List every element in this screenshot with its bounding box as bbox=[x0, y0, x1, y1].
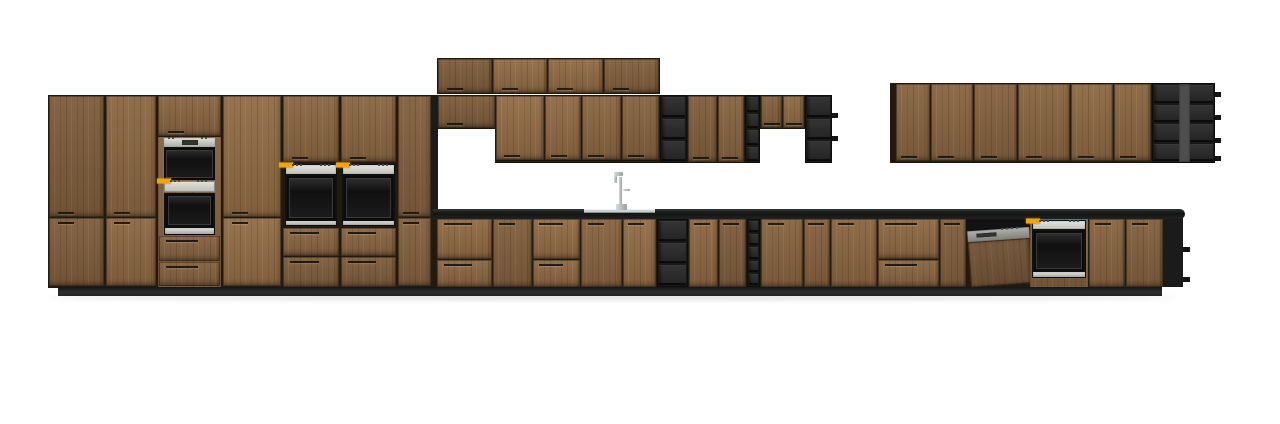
rightwall-door-2[interactable] bbox=[931, 84, 973, 161]
tall-door-1[interactable] bbox=[49, 96, 104, 217]
microwave-glass-door bbox=[164, 148, 215, 180]
open-shelf-wall-narrow[interactable] bbox=[745, 95, 760, 163]
oven-display-icon bbox=[336, 163, 350, 168]
faucet[interactable] bbox=[610, 171, 632, 211]
wall-oven-right[interactable] bbox=[342, 164, 395, 226]
plinth bbox=[58, 287, 1162, 296]
rightwall-door-3[interactable] bbox=[974, 84, 1017, 161]
oven-button bbox=[386, 164, 388, 166]
base-door-3[interactable] bbox=[623, 219, 656, 287]
shelf-cell bbox=[747, 147, 758, 162]
oven-button bbox=[1077, 220, 1079, 222]
midwall-door-3[interactable] bbox=[582, 96, 621, 160]
oven-button bbox=[1073, 220, 1075, 222]
oven-button bbox=[1047, 220, 1049, 222]
shelf-tab-mid-1 bbox=[832, 113, 838, 118]
dishwasher-button bbox=[1001, 228, 1003, 230]
oven-button bbox=[296, 164, 298, 166]
tall-lower-door-3[interactable] bbox=[223, 218, 281, 286]
base-end-panel bbox=[1164, 219, 1183, 287]
base-drawer-1a[interactable] bbox=[437, 219, 492, 259]
tall-lower-door-1[interactable] bbox=[49, 218, 104, 286]
control-button bbox=[178, 180, 180, 182]
base-drawer-1b[interactable] bbox=[437, 260, 492, 287]
faucet-base bbox=[616, 204, 627, 210]
oven-glass-door bbox=[287, 176, 335, 220]
base-door-11[interactable] bbox=[1126, 219, 1163, 287]
oven-glass-door bbox=[344, 176, 393, 220]
dishwasher-wood-panel bbox=[968, 238, 1033, 287]
open-shelf-base-narrow[interactable] bbox=[747, 219, 760, 287]
midwall-door-5[interactable] bbox=[688, 96, 717, 162]
oven-button bbox=[1039, 220, 1041, 222]
oven-button bbox=[1069, 220, 1071, 222]
rightwall-door-6[interactable] bbox=[1114, 84, 1151, 161]
wall-oven-left[interactable] bbox=[285, 164, 337, 226]
upper-stack-door-3[interactable] bbox=[548, 59, 603, 93]
below-oven-drawer-r1[interactable] bbox=[341, 228, 396, 256]
oven-steel-strip bbox=[286, 221, 336, 225]
shelf-tab-mid-2 bbox=[832, 136, 838, 141]
shelf-cell bbox=[749, 234, 758, 245]
shelf-cell bbox=[807, 141, 830, 161]
microwave-button bbox=[205, 137, 207, 139]
oven-glass-door bbox=[166, 194, 213, 227]
midwall-short-door-r1[interactable] bbox=[761, 96, 782, 128]
shelf-tab-right-4 bbox=[1215, 156, 1221, 161]
shelf-cell bbox=[659, 243, 686, 263]
oven-steel-strip bbox=[343, 221, 394, 225]
oven-button bbox=[324, 164, 326, 166]
open-shelf-right-divider bbox=[1179, 84, 1190, 162]
base-drawer-3b[interactable] bbox=[878, 260, 939, 287]
oven-control-panel bbox=[343, 165, 394, 174]
midwall-door-1[interactable] bbox=[496, 96, 544, 160]
above-wall-oven-door-right[interactable] bbox=[341, 96, 396, 162]
compact-oven[interactable] bbox=[164, 138, 215, 180]
oven-button bbox=[353, 164, 355, 166]
upper-stack-door-1[interactable] bbox=[438, 59, 492, 93]
midwall-door-2[interactable] bbox=[545, 96, 581, 160]
base-door-9[interactable] bbox=[940, 219, 966, 287]
midwall-short-door-r2[interactable] bbox=[783, 96, 804, 128]
shelf-cell bbox=[749, 221, 758, 232]
shelf-tab-right-3 bbox=[1215, 138, 1221, 143]
open-shelf-base-1[interactable] bbox=[657, 219, 688, 287]
control-display-icon bbox=[157, 179, 171, 184]
faucet-spout-stem bbox=[619, 177, 622, 205]
kitchen-render-viewport bbox=[0, 0, 1280, 424]
base-drawer-3a[interactable] bbox=[878, 219, 939, 259]
oven-steel-strip bbox=[1033, 272, 1085, 277]
countertop bbox=[433, 209, 1185, 219]
control-button bbox=[170, 180, 172, 182]
upper-stack-door-2[interactable] bbox=[493, 59, 547, 93]
midwall-door-4[interactable] bbox=[622, 96, 659, 160]
base-end-tab-2 bbox=[1183, 277, 1190, 282]
tall-lower-door-4[interactable] bbox=[398, 218, 431, 286]
oven-button bbox=[292, 164, 294, 166]
base-door-5[interactable] bbox=[719, 219, 746, 287]
tall-oven[interactable] bbox=[164, 193, 215, 235]
base-drawer-2a[interactable] bbox=[533, 219, 580, 259]
shelf-tab-right-1 bbox=[1215, 92, 1221, 97]
above-wall-oven-door-left[interactable] bbox=[283, 96, 339, 162]
oven-button bbox=[320, 164, 322, 166]
oven-button bbox=[300, 164, 302, 166]
base-door-1[interactable] bbox=[493, 219, 532, 287]
dishwasher-button bbox=[1006, 227, 1008, 229]
oven-button bbox=[328, 164, 330, 166]
faucet-spout-tip bbox=[614, 176, 617, 183]
dishwasher-display-icon bbox=[976, 232, 996, 237]
rightwall-door-1[interactable] bbox=[896, 84, 930, 161]
oven-steel-strip bbox=[165, 228, 214, 234]
upper-stack-door-4[interactable] bbox=[604, 59, 659, 93]
microwave-button bbox=[172, 137, 174, 139]
oven-button bbox=[349, 164, 351, 166]
rightwall-door-5[interactable] bbox=[1071, 84, 1113, 161]
open-shelf-wall-1[interactable] bbox=[660, 95, 687, 163]
shelf-cell bbox=[807, 119, 830, 139]
below-oven-drawer-l2[interactable] bbox=[283, 257, 339, 287]
shelf-cell bbox=[749, 274, 758, 285]
shelf-cell bbox=[662, 119, 685, 139]
base-door-7[interactable] bbox=[804, 219, 830, 287]
shelf-cell bbox=[747, 114, 758, 129]
control-button bbox=[197, 180, 199, 182]
shelf-cell bbox=[807, 97, 830, 117]
below-oven-drawer-l1[interactable] bbox=[283, 228, 339, 256]
oven-tower-top-door[interactable] bbox=[158, 96, 221, 136]
dishwasher-tilted-door bbox=[967, 227, 1033, 288]
tall-run-end-panel bbox=[431, 95, 438, 218]
tall-door-3[interactable] bbox=[223, 96, 281, 217]
oven-button bbox=[378, 164, 380, 166]
base-door-10[interactable] bbox=[1089, 219, 1125, 287]
base-door-4[interactable] bbox=[689, 219, 718, 287]
microwave-button bbox=[201, 137, 203, 139]
microwave-control-strip bbox=[164, 138, 215, 147]
base-end-tab-1 bbox=[1183, 247, 1190, 252]
dishwasher-button bbox=[1011, 227, 1013, 229]
open-shelf-wall-2[interactable] bbox=[805, 95, 832, 163]
microwave-button bbox=[168, 137, 170, 139]
rightwall-door-4[interactable] bbox=[1018, 84, 1070, 161]
oven-button bbox=[357, 164, 359, 166]
base-drawer-2b[interactable] bbox=[533, 260, 580, 287]
midwall-door-6[interactable] bbox=[718, 96, 744, 162]
control-button bbox=[174, 180, 176, 182]
faucet-lever-handle bbox=[623, 189, 630, 191]
shelf-tab-right-2 bbox=[1215, 115, 1221, 120]
base-door-8[interactable] bbox=[831, 219, 877, 287]
control-button bbox=[205, 180, 207, 182]
microwave-display-icon bbox=[182, 140, 198, 145]
oven-control-panel bbox=[1033, 221, 1085, 229]
midwall-short-door-left[interactable] bbox=[438, 96, 495, 128]
dishwasher[interactable] bbox=[966, 219, 1030, 285]
oven-button bbox=[382, 164, 384, 166]
oven-control-strip[interactable] bbox=[164, 181, 215, 192]
oven-display-icon bbox=[1026, 219, 1040, 224]
oven-control-panel bbox=[286, 165, 336, 174]
tall-door-2[interactable] bbox=[106, 96, 156, 217]
oven-button bbox=[1043, 220, 1045, 222]
base-door-2[interactable] bbox=[581, 219, 622, 287]
control-button bbox=[201, 180, 203, 182]
shelf-cell bbox=[662, 97, 685, 117]
oven-display-icon bbox=[279, 163, 293, 168]
shelf-cell bbox=[749, 261, 758, 272]
shelf-cell bbox=[659, 265, 686, 285]
base-door-6[interactable] bbox=[761, 219, 803, 287]
shelf-cell bbox=[662, 141, 685, 161]
dishwasher-button bbox=[1016, 227, 1018, 229]
shelf-cell bbox=[747, 97, 758, 112]
oven-glass-door bbox=[1034, 231, 1084, 271]
shelf-cell bbox=[659, 221, 686, 241]
oven-tower-drawer-1[interactable] bbox=[159, 236, 220, 261]
below-oven-drawer-r2[interactable] bbox=[341, 257, 396, 287]
shelf-cell bbox=[747, 130, 758, 145]
tall-lower-door-2[interactable] bbox=[106, 218, 156, 286]
shelf-cell bbox=[749, 247, 758, 258]
tall-door-4[interactable] bbox=[398, 96, 431, 217]
base-oven[interactable] bbox=[1032, 220, 1086, 278]
oven-tower-drawer-2[interactable] bbox=[159, 262, 220, 286]
